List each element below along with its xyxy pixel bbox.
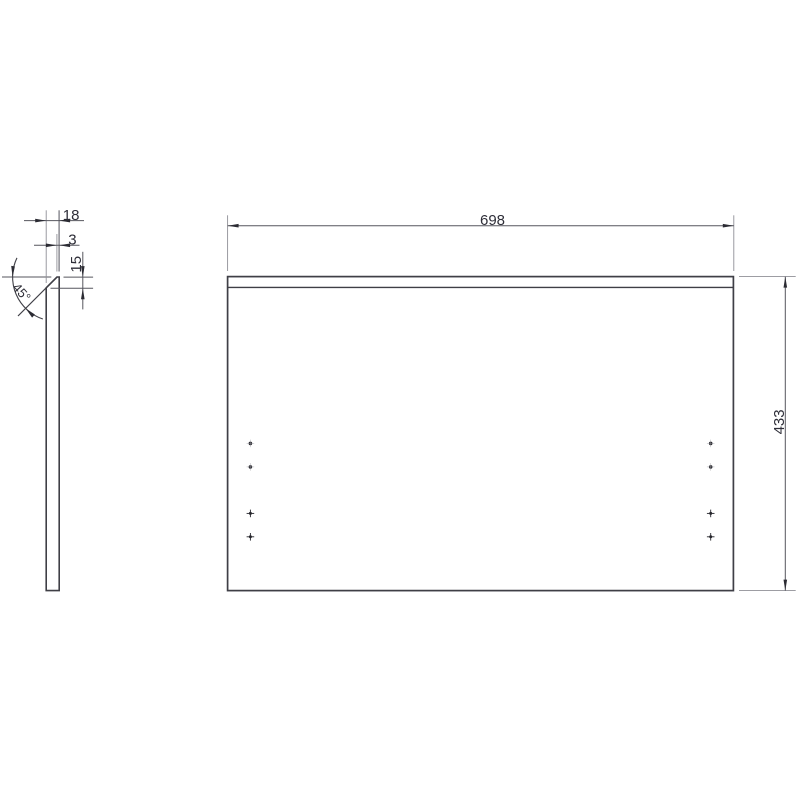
svg-text:18: 18 (63, 207, 80, 224)
svg-text:698: 698 (480, 212, 505, 229)
svg-text:3: 3 (68, 232, 76, 249)
svg-text:15: 15 (68, 256, 85, 273)
svg-text:433: 433 (771, 409, 788, 434)
